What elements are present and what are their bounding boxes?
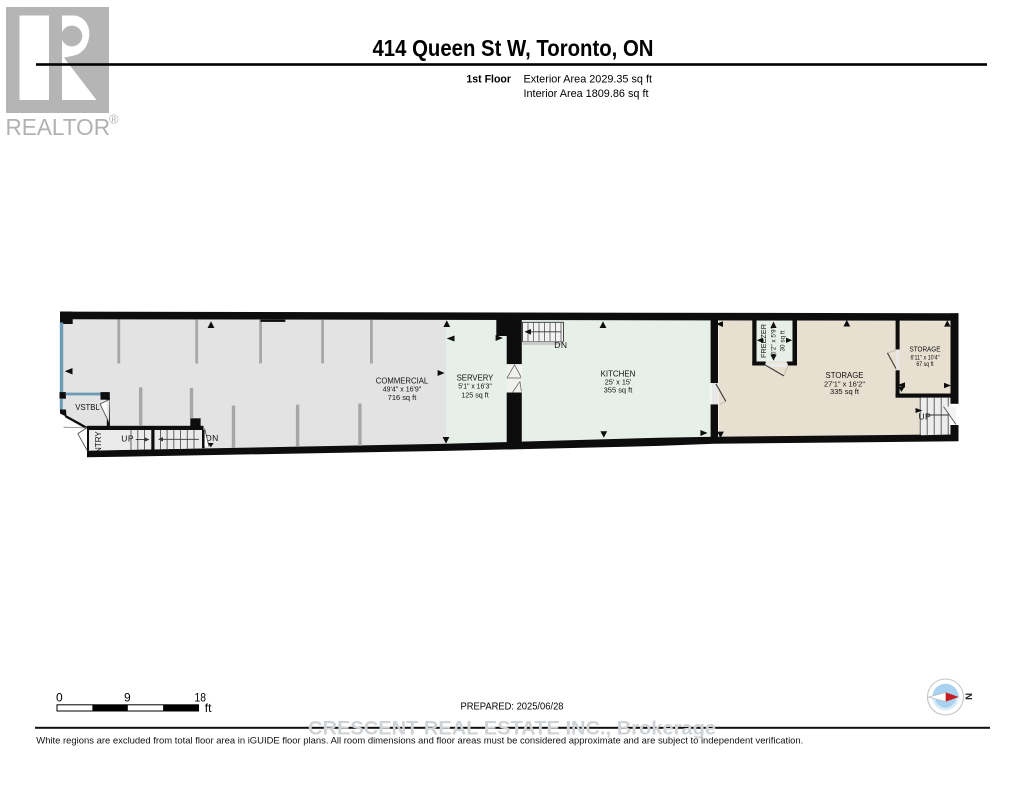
svg-text:ft: ft <box>205 701 212 715</box>
svg-text:6'2" x 5'9": 6'2" x 5'9" <box>771 327 778 355</box>
svg-text:VSTBL: VSTBL <box>75 402 100 412</box>
svg-text:Exterior Area 2029.35 sq ft: Exterior Area 2029.35 sq ft <box>524 74 653 86</box>
svg-text:NTRY: NTRY <box>93 431 103 453</box>
svg-text:30 sq ft: 30 sq ft <box>780 330 787 351</box>
svg-text:White regions are excluded fro: White regions are excluded from total fl… <box>36 734 803 745</box>
svg-text:335 sq ft: 335 sq ft <box>830 387 859 396</box>
svg-text:REALTOR: REALTOR <box>6 114 111 140</box>
svg-text:716 sq ft: 716 sq ft <box>388 393 417 402</box>
svg-text:UP: UP <box>919 412 932 422</box>
svg-text:DN: DN <box>554 340 567 350</box>
svg-text:UP: UP <box>121 434 134 444</box>
svg-text:414 Queen St W, Toronto, ON: 414 Queen St W, Toronto, ON <box>373 35 654 61</box>
svg-text:9: 9 <box>124 691 131 705</box>
svg-text:N: N <box>962 693 973 700</box>
svg-text:0: 0 <box>56 691 63 705</box>
svg-text:STORAGE: STORAGE <box>826 370 864 380</box>
svg-text:PREPARED: 2025/06/28: PREPARED: 2025/06/28 <box>461 702 564 713</box>
svg-text:355 sq ft: 355 sq ft <box>604 386 633 395</box>
svg-text:67 sq ft: 67 sq ft <box>916 361 933 368</box>
svg-text:STORAGE: STORAGE <box>909 345 940 354</box>
svg-text:®: ® <box>109 112 119 127</box>
svg-text:125 sq ft: 125 sq ft <box>461 391 488 400</box>
svg-text:1st Floor: 1st Floor <box>466 74 511 86</box>
svg-text:Interior Area 1809.86 sq ft: Interior Area 1809.86 sq ft <box>524 88 649 100</box>
svg-text:5'1" x 16'3": 5'1" x 16'3" <box>458 382 492 391</box>
